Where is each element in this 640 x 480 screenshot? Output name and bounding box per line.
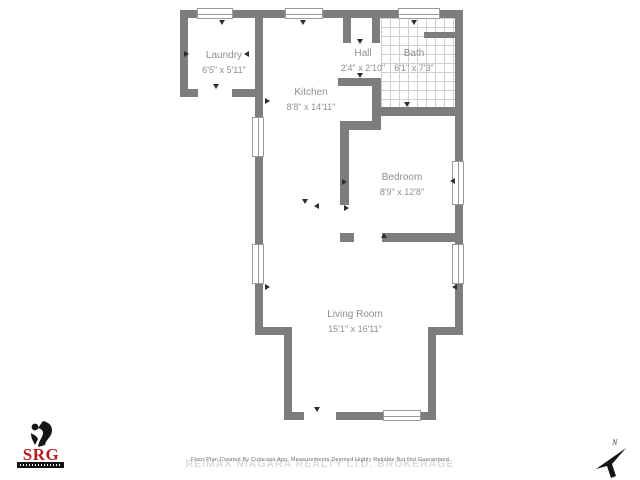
room-name: Laundry: [202, 49, 246, 63]
door-marker: [265, 98, 270, 104]
door-marker: [381, 233, 387, 238]
room-name: Bedroom: [380, 171, 424, 185]
wall: [381, 107, 463, 116]
door-marker: [213, 84, 219, 89]
room-label-living-room: Living Room15'1" x 16'11": [327, 308, 383, 336]
window-mullion: [286, 14, 322, 15]
wall: [428, 335, 436, 420]
room-dimensions: 6'1" x 7'3": [394, 61, 433, 75]
wall: [455, 284, 463, 335]
room-label-hall: Hall2'4" x 2'10": [341, 47, 385, 75]
window-mullion: [458, 245, 459, 283]
window-mullion: [198, 14, 232, 15]
door-marker: [302, 199, 308, 204]
room-label-kitchen: Kitchen8'8" x 14'11": [287, 86, 336, 114]
room-label-bedroom: Bedroom8'9" x 12'8": [380, 171, 424, 199]
room-name: Living Room: [327, 308, 383, 322]
window-mullion: [258, 245, 259, 283]
window: [252, 244, 264, 284]
door-marker: [265, 284, 270, 290]
wall: [180, 89, 198, 97]
room-dimensions: 2'4" x 2'10": [341, 61, 385, 75]
door-marker: [411, 20, 417, 25]
room-dimensions: 6'5" x 5'11": [202, 63, 246, 77]
floorplan: Laundry6'5" x 5'11"Hall2'4" x 2'10"Bath6…: [0, 0, 640, 480]
room-name: Kitchen: [287, 86, 336, 100]
window: [383, 410, 421, 421]
wall: [340, 130, 349, 205]
wall: [255, 97, 263, 117]
floorplan-image: Laundry6'5" x 5'11"Hall2'4" x 2'10"Bath6…: [0, 0, 640, 480]
door-marker: [357, 39, 363, 44]
wall: [340, 121, 381, 130]
room-dimensions: 8'8" x 14'11": [287, 100, 336, 114]
room-dimensions: 15'1" x 16'11": [327, 322, 383, 336]
room-name: Bath: [394, 47, 433, 61]
wall: [372, 18, 380, 43]
door-marker: [404, 102, 410, 107]
room-label-bath: Bath6'1" x 7'3": [394, 47, 433, 75]
srg-logo: SRG: [16, 420, 66, 472]
north-label: N: [612, 438, 617, 447]
door-marker: [450, 178, 455, 184]
window: [398, 8, 440, 19]
door-marker: [344, 205, 349, 211]
room-label-laundry: Laundry6'5" x 5'11": [202, 49, 246, 77]
wall: [382, 233, 463, 242]
door-marker: [184, 51, 189, 57]
wall: [255, 157, 263, 244]
room-name: Hall: [341, 47, 385, 61]
door-marker: [314, 407, 320, 412]
srg-logo-emblem-icon: [27, 421, 55, 447]
window: [252, 117, 264, 157]
wall: [284, 327, 292, 420]
window-mullion: [399, 14, 439, 15]
srg-logo-tagline-bar: [17, 462, 64, 468]
window: [285, 8, 323, 19]
srg-logo-tagline-text: [20, 464, 61, 466]
wall: [255, 18, 263, 97]
watermark-disclaimer: Floor Plan Created By Cubicasa App. Meas…: [191, 457, 449, 463]
wall: [343, 18, 351, 43]
wall: [340, 233, 354, 242]
window-mullion: [458, 162, 459, 204]
room-dimensions: 8'9" x 12'8": [380, 185, 424, 199]
north-compass: N: [592, 438, 632, 478]
window-mullion: [258, 118, 259, 156]
wall: [455, 18, 463, 161]
door-marker: [300, 20, 306, 25]
door-marker: [342, 179, 347, 185]
window-mullion: [384, 416, 420, 417]
wall: [424, 32, 455, 38]
door-marker: [452, 284, 457, 290]
window: [452, 244, 464, 284]
wall: [284, 412, 304, 420]
wall: [336, 412, 384, 420]
door-marker: [219, 20, 225, 25]
window: [197, 8, 233, 19]
door-marker: [314, 203, 319, 209]
